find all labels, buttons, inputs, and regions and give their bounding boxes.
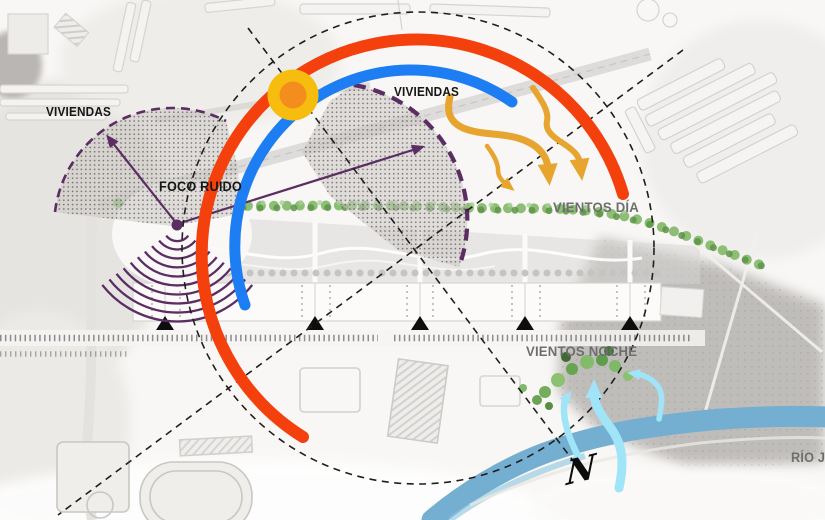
day-wind-arrow [449,97,548,168]
label-vientos-dia: VIENTOS DÍA [553,199,639,215]
day-wind-arrow [487,146,506,184]
sun-symbol [268,70,319,121]
night-wind-arrow [637,374,662,419]
dashed-guides [58,12,683,515]
site-analysis-diagram: VIVIENDAS FOCO RUIDO VIVIENDAS VIENTOS D… [0,0,825,520]
night-wind-arrow [594,394,622,488]
analysis-overlay [0,0,825,520]
label-viviendas-right: VIVIENDAS [394,85,459,99]
label-vientos-noche: VIENTOS NOCHE [526,343,637,359]
north-arrow: N [566,446,597,494]
noise-source-dot [172,220,183,231]
label-rio: RÍO J [791,450,825,465]
label-foco-ruido: FOCO RUIDO [159,179,242,194]
label-viviendas-left: VIVIENDAS [46,105,111,119]
